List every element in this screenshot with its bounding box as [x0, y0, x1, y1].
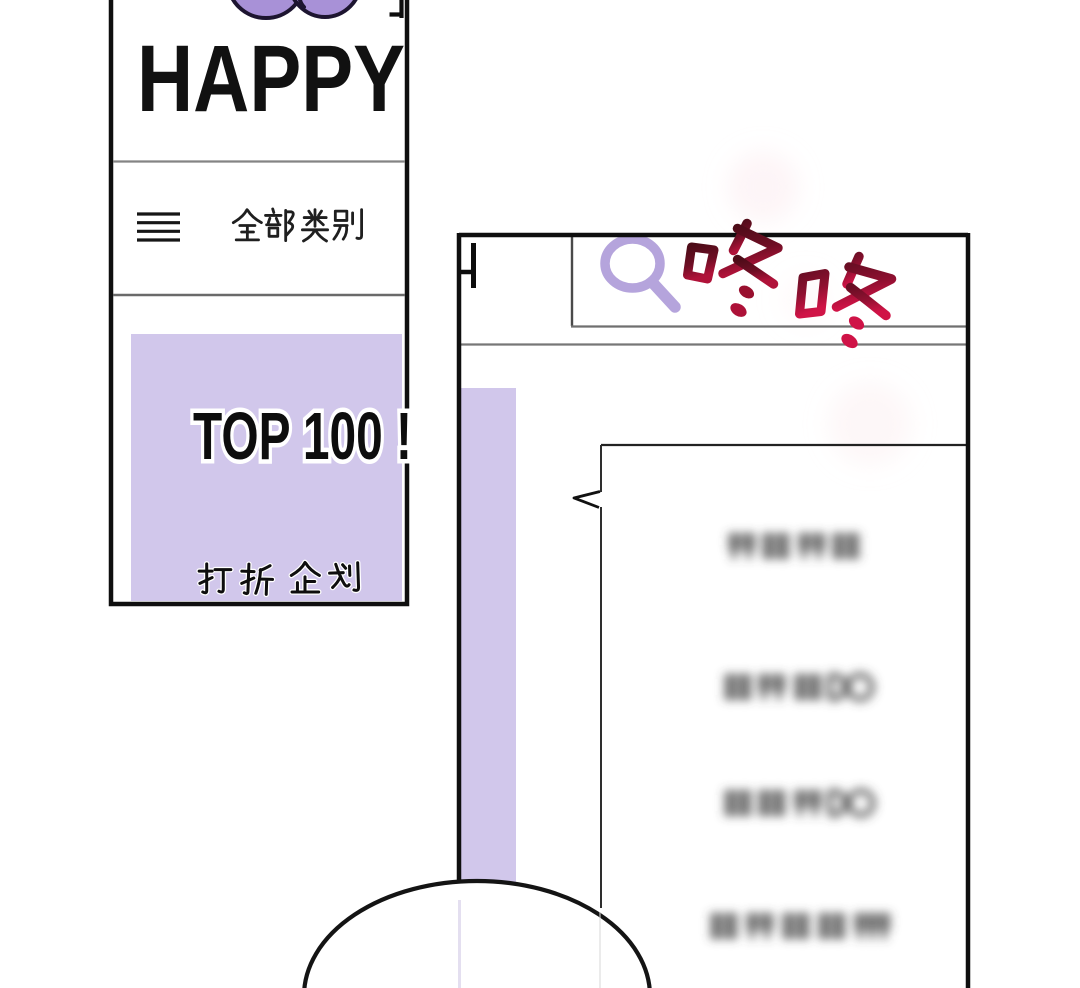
svg-text:TOP 100 !: TOP 100 ! — [193, 399, 412, 474]
svg-text:HAPPY: HAPPY — [137, 26, 405, 132]
